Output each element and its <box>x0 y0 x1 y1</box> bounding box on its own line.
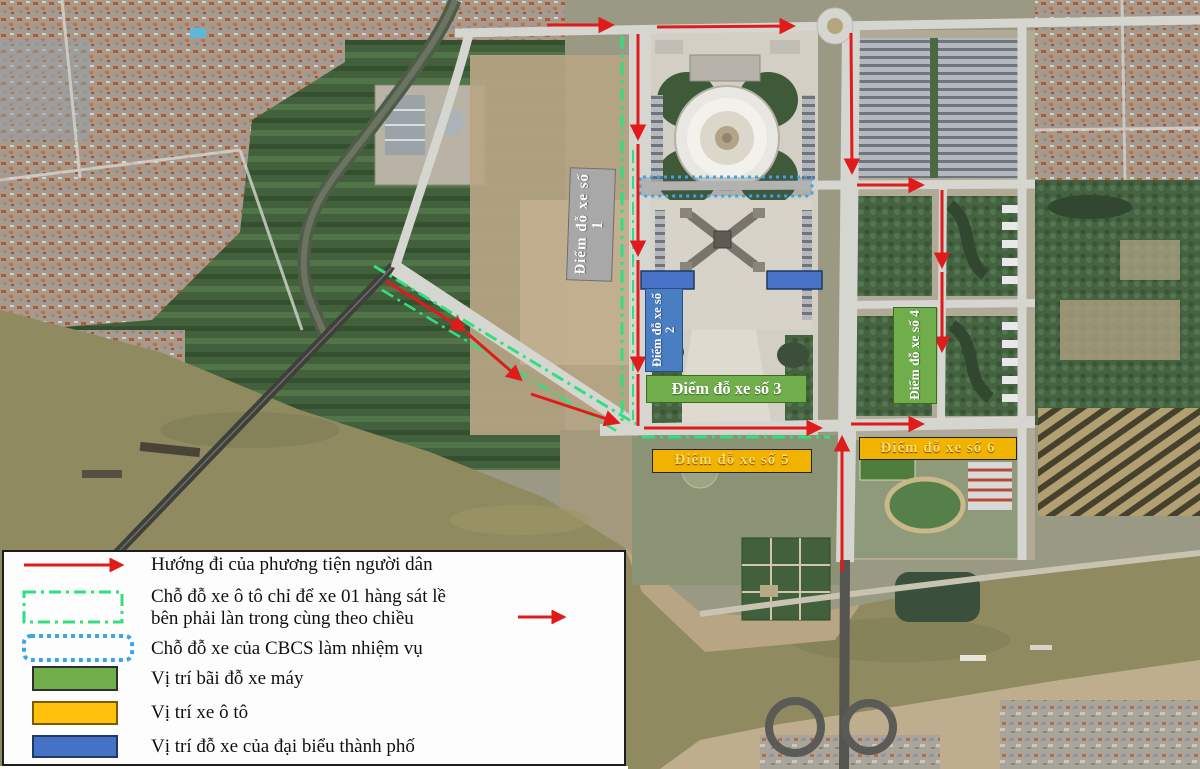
legend-red-arrow-icon <box>20 558 136 572</box>
legend-delegate-swatch <box>32 735 118 758</box>
traffic-parking-map: Điểm đỗ xe số 1 Điểm đỗ xe số 2 Điểm đỗ … <box>0 0 1200 769</box>
legend-parking-lane-icon <box>22 590 124 624</box>
legend-item-car-lane-line2: bên phải làn trong cùng theo chiều <box>151 608 414 630</box>
parking-label-5: Điểm đỗ xe số 5 <box>652 449 812 473</box>
parking-label-1: Điểm đỗ xe số 1 <box>566 167 616 282</box>
cbcs-parking-zone <box>640 177 812 196</box>
legend-inline-red-arrow-icon <box>516 610 574 624</box>
parking-label-2: Điểm đỗ xe số 2 <box>645 288 683 372</box>
legend-item-car-lane-line1: Chỗ đỗ xe ô tô chỉ để xe 01 hàng sát lề <box>151 586 446 608</box>
parking-label-3: Điểm đỗ xe số 3 <box>646 375 807 403</box>
legend-item-cbcs: Chỗ đỗ xe của CBCS làm nhiệm vụ <box>151 638 423 660</box>
legend-motorbike-swatch <box>32 666 118 691</box>
legend-item-motorbike: Vị trí bãi đỗ xe máy <box>151 668 304 690</box>
legend-item-delegate: Vị trí đỗ xe của đại biểu thành phố <box>151 736 415 758</box>
legend-item-car: Vị trí xe ô tô <box>151 702 248 724</box>
parking-label-4: Điểm đỗ xe số 4 <box>893 307 937 404</box>
parking-label-6: Điểm đỗ xe số 6 <box>859 437 1017 460</box>
legend-car-swatch <box>32 701 118 725</box>
legend-cbcs-zone-icon <box>21 633 135 663</box>
legend-item-direction: Hướng đi của phương tiện người dân <box>151 554 433 576</box>
legend-panel: Hướng đi của phương tiện người dân Chỗ đ… <box>2 550 626 766</box>
delegate-parking-blocks <box>641 271 822 289</box>
